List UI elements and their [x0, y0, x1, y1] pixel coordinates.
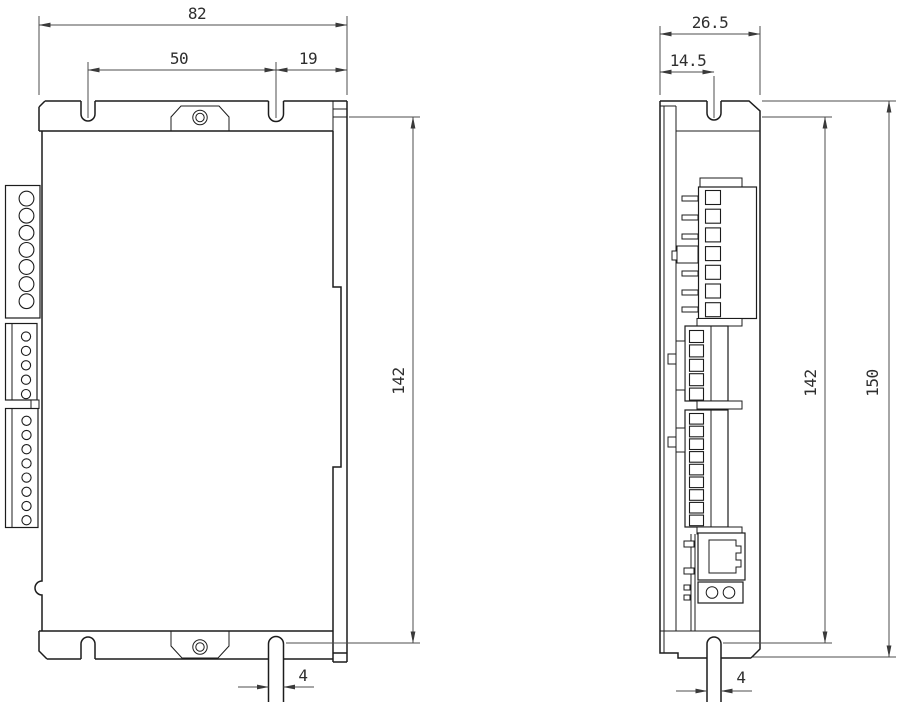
dim-text-150: 150 [863, 369, 882, 396]
dim-side-slot-offset: 14.5 [660, 51, 714, 118]
dim-text-142-side: 142 [801, 369, 820, 396]
side-power-terminal [672, 178, 757, 326]
side-modular-jack [684, 533, 745, 580]
front-body-right-edge [333, 101, 347, 662]
dim-text-26-5: 26.5 [692, 13, 729, 32]
side-bottom-slot [707, 637, 721, 702]
dim-side-slot-width: 4 [676, 668, 752, 691]
front-top-right-tab [333, 101, 347, 131]
side-signal-lower-openings [690, 414, 704, 526]
front-terminal-step [31, 400, 39, 409]
front-bottom-slot-right [269, 637, 284, 703]
dim-front-slot-to-edge: 19 [276, 49, 347, 70]
side-signal-terminal-lower [668, 410, 742, 534]
front-bottom-screw-hole [193, 640, 207, 654]
dim-front-slot-width: 4 [238, 666, 314, 687]
front-bottom-flange [39, 631, 333, 659]
dim-front-slot-spacing: 50 [88, 49, 276, 118]
front-bottom-slot-left [81, 637, 95, 659]
front-signal-terminal-lower [6, 409, 39, 528]
front-top-mount-plate [171, 106, 229, 131]
side-pcb-edge [691, 534, 695, 631]
dim-text-4-front: 4 [298, 666, 307, 685]
side-terminal-lip [697, 401, 742, 409]
technical-drawing-page: 82 50 19 142 4 26.5 [0, 0, 908, 710]
front-top-screw-hole [193, 110, 207, 124]
side-power-terminal-openings [706, 191, 721, 317]
dim-text-14-5: 14.5 [670, 51, 707, 70]
side-led-block [684, 582, 743, 603]
dim-text-19: 19 [299, 49, 317, 68]
dim-text-82: 82 [188, 4, 206, 23]
front-power-terminal [6, 186, 41, 319]
front-signal-terminal-upper [6, 324, 38, 401]
dimension-annotations: 82 50 19 142 4 26.5 [39, 4, 896, 691]
dim-text-50: 50 [170, 49, 188, 68]
dim-text-4-side: 4 [736, 668, 745, 687]
side-signal-upper-openings [690, 331, 704, 401]
dim-front-mounting-height: 142 [286, 117, 420, 643]
side-view [660, 101, 760, 702]
front-view [6, 101, 348, 702]
side-signal-terminal-upper [668, 326, 728, 401]
dim-text-142-front: 142 [389, 367, 408, 394]
drawing-svg: 82 50 19 142 4 26.5 [0, 0, 908, 710]
